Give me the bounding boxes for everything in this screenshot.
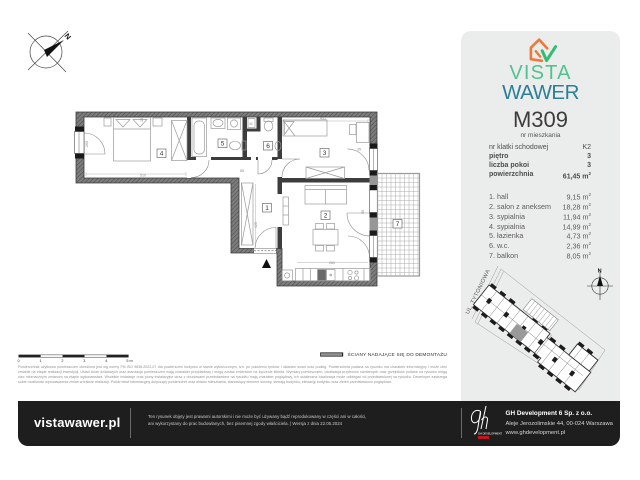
svg-text:N: N [63, 32, 73, 42]
svg-text:0: 0 [18, 359, 20, 363]
svg-text:2: 2 [324, 213, 328, 220]
svg-text:M: M [250, 122, 253, 126]
svg-text:1: 1 [265, 205, 269, 212]
svg-text:85: 85 [240, 169, 244, 173]
svg-text:265: 265 [85, 141, 89, 147]
svg-text:260: 260 [329, 261, 335, 265]
svg-text:35: 35 [357, 148, 361, 152]
svg-text:4: 4 [160, 151, 164, 158]
svg-text:1: 1 [40, 359, 42, 363]
svg-text:425: 425 [254, 222, 258, 228]
svg-text:3: 3 [83, 359, 85, 363]
svg-text:15: 15 [140, 118, 144, 122]
svg-text:5 m: 5 m [126, 359, 132, 363]
svg-text:5: 5 [221, 141, 225, 148]
svg-text:7: 7 [396, 221, 400, 228]
svg-text:90: 90 [361, 210, 365, 214]
svg-text:6: 6 [266, 143, 270, 150]
svg-text:3: 3 [323, 150, 327, 157]
svg-text:4: 4 [105, 359, 107, 363]
svg-text:2: 2 [61, 359, 63, 363]
svg-text:510: 510 [140, 174, 146, 178]
svg-text:451: 451 [320, 117, 326, 121]
